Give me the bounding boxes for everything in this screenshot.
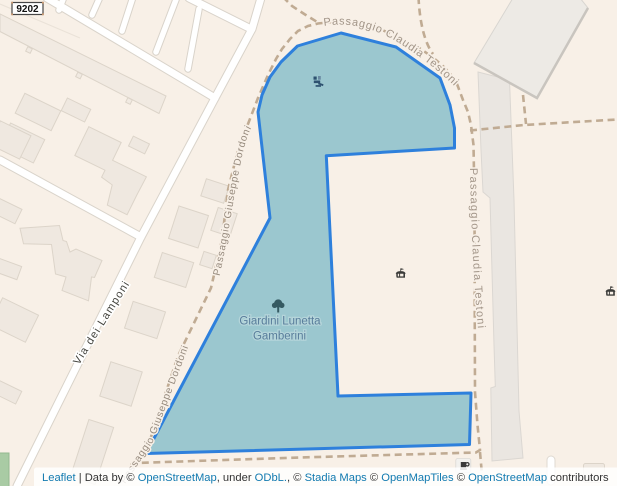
svg-text:Leaflet | Data by © OpenStreet: Leaflet | Data by © OpenStreetMap, under… xyxy=(42,472,609,484)
svg-text:Giardini Lunetta: Giardini Lunetta xyxy=(239,316,321,328)
svg-text:Gamberini: Gamberini xyxy=(253,331,306,343)
svg-text:9202: 9202 xyxy=(16,4,39,15)
